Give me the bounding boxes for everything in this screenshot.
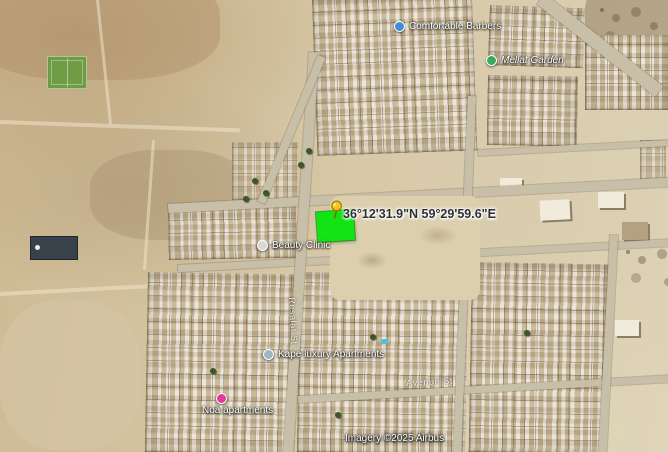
building [622, 222, 648, 240]
poi-barbers[interactable]: Comfortable Barbers [394, 21, 501, 32]
tree [210, 368, 216, 374]
generic-poi-icon[interactable] [257, 240, 268, 251]
poi-noa-apartments[interactable]: Noa apartments [216, 393, 273, 416]
poi-garden[interactable]: Mellat Garden [486, 55, 564, 66]
tree [263, 190, 269, 196]
building-block [487, 75, 578, 147]
building-block [168, 206, 297, 260]
park-poi-icon[interactable] [486, 55, 497, 66]
water-reservoir [30, 236, 78, 260]
rubble-speckles [600, 8, 604, 12]
tree [306, 148, 312, 154]
building [539, 199, 570, 221]
desert-patch [0, 300, 140, 450]
shop-poi-icon[interactable] [394, 21, 405, 32]
poi-luxury-apartments[interactable]: Kape luxury Apartments [263, 349, 384, 360]
dirt-track [0, 283, 170, 296]
poi-label[interactable]: Beauty Clinic [272, 240, 330, 251]
building [615, 320, 639, 336]
poi-label[interactable]: Kape luxury Apartments [278, 349, 384, 360]
satellite-map-canvas[interactable]: 36°12'31.9"N 59°29'59.6"E Comfortable Ba… [0, 0, 668, 452]
rubble-speckles [626, 250, 630, 254]
poi-beauty-clinic[interactable]: Beauty Clinic [257, 240, 330, 251]
poi-label[interactable]: Mellat Garden [501, 55, 564, 66]
poi-label[interactable]: Comfortable Barbers [409, 21, 501, 32]
tree [335, 412, 341, 418]
building-block [145, 272, 298, 452]
lodging-poi-icon[interactable] [263, 349, 274, 360]
swimming-pool [381, 339, 388, 344]
tree [252, 178, 258, 184]
tree [298, 162, 304, 168]
soccer-field [47, 56, 87, 89]
building [598, 192, 624, 208]
tree [370, 334, 376, 340]
imagery-attribution: Imagery ©2025 Airbus [345, 433, 444, 444]
building-block [469, 262, 610, 452]
tree [243, 196, 249, 202]
desert-patch [0, 0, 220, 80]
dirt-track [0, 120, 240, 132]
tree [524, 330, 530, 336]
coordinates-label[interactable]: 36°12'31.9"N 59°29'59.6"E [343, 207, 496, 221]
beauty-poi-icon[interactable] [216, 393, 227, 404]
poi-label[interactable]: Noa apartments [202, 405, 273, 416]
